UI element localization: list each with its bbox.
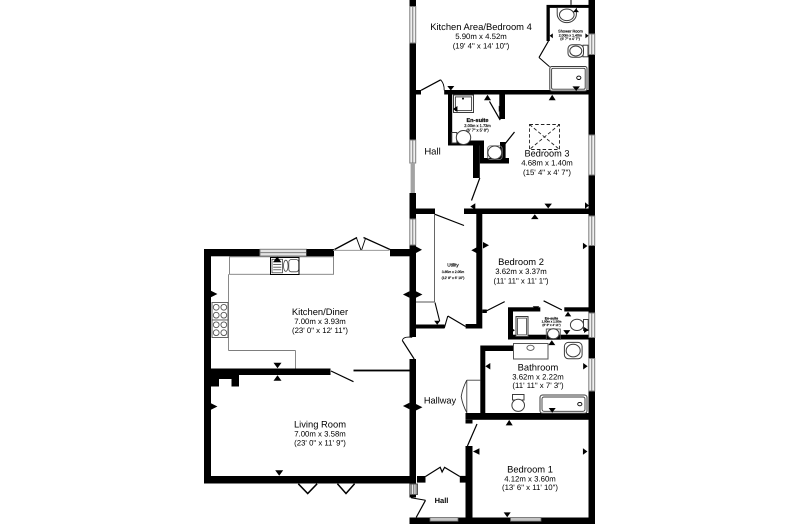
svg-text:(11' 11" x 11' 1"): (11' 11" x 11' 1") (494, 277, 549, 286)
svg-text:5.90m x 4.52m: 5.90m x 4.52m (455, 32, 507, 41)
svg-text:Bedroom 3: Bedroom 3 (525, 148, 570, 158)
svg-text:Bedroom 2: Bedroom 2 (498, 256, 544, 267)
svg-text:(23' 0" x 12' 11"): (23' 0" x 12' 11") (292, 326, 348, 335)
svg-text:Kitchen Area/Bedroom 4: Kitchen Area/Bedroom 4 (430, 21, 532, 32)
svg-text:(15' 4" x 4' 7"): (15' 4" x 4' 7") (523, 168, 571, 177)
svg-text:3.85m x 2.05m: 3.85m x 2.05m (442, 270, 465, 274)
svg-text:7.00m x 3.93m: 7.00m x 3.93m (294, 317, 346, 326)
svg-text:(6' 7" x 5' 8"): (6' 7" x 5' 8") (466, 127, 489, 132)
svg-text:Bedroom 1: Bedroom 1 (507, 464, 553, 475)
svg-text:Hall: Hall (435, 496, 449, 505)
svg-text:Hall: Hall (424, 146, 440, 157)
svg-text:Kitchen/Diner: Kitchen/Diner (292, 306, 348, 317)
svg-text:Hallway: Hallway (424, 395, 457, 405)
svg-text:Living Room: Living Room (294, 419, 346, 430)
svg-text:(12' 8" x 6' 10"): (12' 8" x 6' 10") (442, 276, 465, 280)
svg-text:(6' 7" x 4' 7"): (6' 7" x 4' 7") (560, 37, 580, 41)
svg-text:(23' 0" x 11' 9"): (23' 0" x 11' 9") (294, 439, 346, 448)
svg-text:Utility: Utility (447, 263, 459, 268)
svg-text:3.62m x 3.37m: 3.62m x 3.37m (495, 267, 547, 276)
svg-text:7.00m x 3.58m: 7.00m x 3.58m (294, 430, 346, 439)
svg-text:(19' 4" x 14' 10"): (19' 4" x 14' 10") (453, 42, 510, 51)
svg-text:(11' 11" x 7' 3"): (11' 11" x 7' 3") (512, 381, 564, 390)
svg-text:(13' 6" x 11' 10"): (13' 6" x 11' 10") (502, 483, 558, 492)
svg-text:4.68m x 1.40m: 4.68m x 1.40m (521, 159, 573, 168)
svg-text:(6' 3" x 4' 11"): (6' 3" x 4' 11") (542, 323, 560, 327)
svg-text:Bathroom: Bathroom (518, 362, 559, 373)
